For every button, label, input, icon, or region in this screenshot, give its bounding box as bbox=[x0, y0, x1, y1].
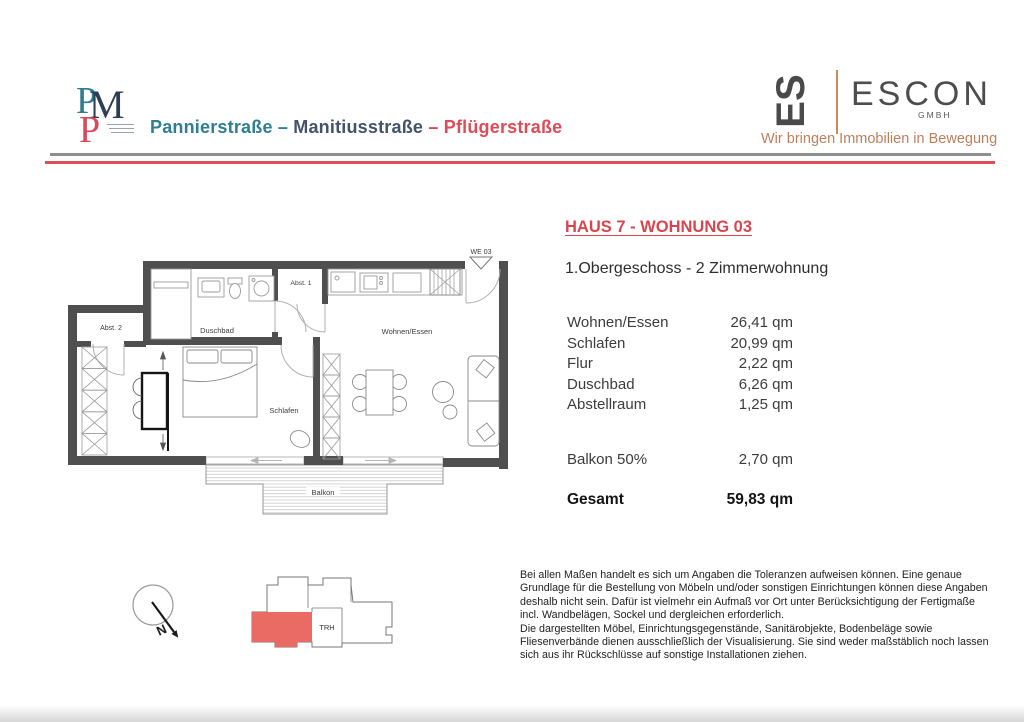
expose-page: P M P Pannierstraße – Manitiusstraße – P… bbox=[0, 0, 1024, 722]
chair bbox=[288, 428, 313, 451]
table-row: Wohnen/Essen 26,41 qm bbox=[567, 313, 793, 334]
room-label: Flur bbox=[567, 354, 593, 375]
street-pfluegerstrasse: Pflügerstraße bbox=[444, 117, 563, 137]
disclaimer-line: Die dargestellten Möbel, Einrichtungsgeg… bbox=[520, 623, 989, 636]
escon-logo-divider bbox=[836, 70, 838, 134]
disclaimer-line: Fliesenverbände dienen ausschließlich de… bbox=[520, 636, 989, 649]
wardrobe-center bbox=[323, 354, 340, 459]
disclaimer-line: incl. Wandbelägen, Sockel und dergleiche… bbox=[520, 609, 989, 622]
disclaimer-line: deshalb nicht sein. Dafür ist vielmehr e… bbox=[520, 596, 989, 609]
north-arrow-icon: N bbox=[128, 576, 198, 648]
pm-logo-letter-p2: P bbox=[79, 111, 100, 149]
room-label-duschbad: Duschbad bbox=[200, 326, 234, 335]
header-rule-gray bbox=[50, 153, 991, 156]
total-area: 59,83 qm bbox=[727, 490, 793, 511]
area-table: Wohnen/Essen 26,41 qm Schlafen 20,99 qm … bbox=[567, 313, 793, 511]
street-manitiusstrasse: Manitiusstraße bbox=[293, 117, 423, 137]
pm-logo-line bbox=[107, 124, 134, 125]
pm-logo-line bbox=[109, 128, 134, 129]
room-label: Balkon 50% bbox=[567, 450, 647, 471]
highlighted-unit bbox=[252, 612, 312, 647]
escon-legal-suffix: GMBH bbox=[918, 110, 952, 120]
wardrobe-left bbox=[82, 347, 107, 455]
room-area: 6,26 qm bbox=[739, 375, 793, 396]
street-separator: – bbox=[273, 117, 294, 137]
page-bottom-shadow bbox=[0, 705, 1024, 722]
escon-logo-mark-icon: ES bbox=[757, 67, 825, 135]
dining-set bbox=[353, 370, 407, 415]
unit-title: HAUS 7 - WOHNUNG 03 bbox=[565, 218, 752, 237]
room-label-balkon: Balkon bbox=[312, 488, 335, 497]
bed bbox=[183, 347, 257, 417]
sofa bbox=[468, 356, 499, 446]
escon-tagline: Wir bringen Immobilien in Bewegung bbox=[761, 131, 997, 147]
room-label-wohnen: Wohnen/Essen bbox=[382, 327, 433, 336]
table-row-balcony: Balkon 50% 2,70 qm bbox=[567, 450, 793, 471]
disclaimer-text: Bei allen Maßen handelt es sich um Angab… bbox=[520, 569, 989, 663]
escon-name: ESCON bbox=[851, 75, 992, 114]
svg-text:ES: ES bbox=[769, 74, 813, 127]
room-area: 2,70 qm bbox=[739, 450, 793, 471]
room-area: 26,41 qm bbox=[730, 313, 793, 334]
project-title: Pannierstraße – Manitiusstraße – Pflüger… bbox=[150, 117, 562, 138]
table-row: Duschbad 6,26 qm bbox=[567, 375, 793, 396]
disclaimer-line: sich aus ihr Rückschlüsse auf sonstige I… bbox=[520, 649, 989, 662]
disclaimer-line: Bei allen Maßen handelt es sich um Angab… bbox=[520, 569, 989, 582]
room-area: 20,99 qm bbox=[730, 334, 793, 355]
stairwell-label: TRH bbox=[319, 623, 334, 632]
street-separator: – bbox=[423, 117, 444, 137]
room-label-schlafen: Schlafen bbox=[269, 406, 298, 415]
disclaimer-line: Grundlage für die Bestellung von Möbeln … bbox=[520, 582, 989, 595]
room-area: 2,22 qm bbox=[739, 354, 793, 375]
coffee-tables bbox=[433, 382, 458, 420]
building-key-plan: TRH bbox=[245, 565, 405, 657]
unit-subtitle: 1.Obergeschoss - 2 Zimmerwohnung bbox=[565, 260, 828, 278]
table-row: Flur 2,22 qm bbox=[567, 354, 793, 375]
table-row: Abstellraum 1,25 qm bbox=[567, 395, 793, 416]
svg-text:WE 03: WE 03 bbox=[470, 249, 491, 256]
room-label: Schlafen bbox=[567, 334, 625, 355]
kitchen-counter bbox=[328, 269, 462, 295]
table-row-total: Gesamt 59,83 qm bbox=[567, 490, 793, 511]
street-pannierstrasse: Pannierstraße bbox=[150, 117, 273, 137]
room-label: Abstellraum bbox=[567, 395, 646, 416]
room-label: Wohnen/Essen bbox=[567, 313, 668, 334]
room-area: 1,25 qm bbox=[739, 395, 793, 416]
room-label-abst2: Abst. 2 bbox=[100, 325, 122, 332]
pm-logo-line bbox=[111, 132, 134, 133]
table-row: Schlafen 20,99 qm bbox=[567, 334, 793, 355]
entrance-marker: WE 03 bbox=[470, 249, 492, 269]
room-label-abst1: Abst. 1 bbox=[290, 280, 311, 287]
floorplan-drawing: WE 03 Abst. 2 Duschbad Abst. 1 Wohnen/Es… bbox=[60, 237, 520, 517]
sliding-wardrobe bbox=[133, 352, 168, 451]
total-label: Gesamt bbox=[567, 490, 624, 511]
header-rule-red bbox=[45, 161, 995, 164]
room-label: Duschbad bbox=[567, 375, 635, 396]
